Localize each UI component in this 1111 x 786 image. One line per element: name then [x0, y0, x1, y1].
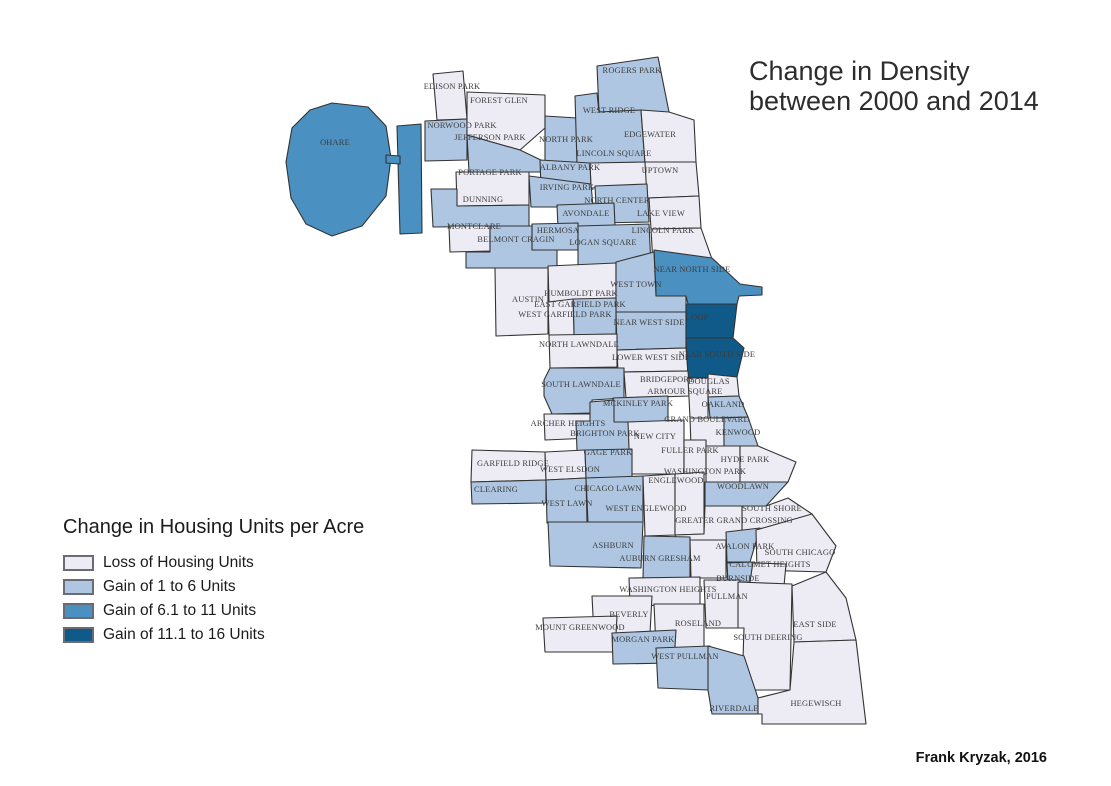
map-area-east-side — [792, 572, 856, 642]
map-label-avondale: AVONDALE — [562, 209, 609, 218]
map-label-gage-park: GAGE PARK — [584, 448, 633, 457]
map-label-calumet-heights: CALUMET HEIGHTS — [729, 560, 810, 569]
map-label-south-chicago: SOUTH CHICAGO — [765, 548, 836, 557]
map-label-south-deering: SOUTH DEERING — [733, 633, 802, 642]
map-area-o-hare-annex — [397, 124, 422, 234]
map-label-chicago-lawn: CHICAGO LAWN — [574, 484, 641, 493]
map-label-garfield-ridge: GARFIELD RIDGE — [477, 459, 549, 468]
map-label-bridgeport: BRIDGEPORT — [640, 375, 694, 384]
map-label-o-hare: OHARE — [320, 138, 350, 147]
legend-swatch-gain-11-16 — [63, 627, 94, 643]
map-label-west-town: WEST TOWN — [610, 280, 661, 289]
map-label-west-garfield-park: WEST GARFIELD PARK — [518, 310, 611, 319]
map-area-edison-park — [433, 71, 467, 120]
map-label-burnside: BURNSIDE — [716, 574, 759, 583]
map-label-rogers-park: ROGERS PARK — [603, 66, 662, 75]
page-title-line1: Change in Density — [749, 56, 1109, 86]
map-label-clearing: CLEARING — [474, 485, 518, 494]
map-label-oakland: OAKLAND — [702, 400, 745, 409]
map-label-fuller-park: FULLER PARK — [661, 446, 719, 455]
map-label-irving-park: IRVING PARK — [540, 183, 595, 192]
map-label-ashburn: ASHBURN — [592, 541, 633, 550]
legend-item-gain-1-6: Gain of 1 to 6 Units — [63, 578, 423, 596]
map-label-uptown: UPTOWN — [642, 166, 679, 175]
map-label-woodlawn: WOODLAWN — [717, 482, 769, 491]
map-label-hermosa: HERMOSA — [537, 226, 579, 235]
map-label-belmont-cragin: BELMONT CRAGIN — [477, 235, 554, 244]
map-label-beverly: BEVERLY — [609, 610, 648, 619]
map-label-north-lawndale: NORTH LAWNDALE — [539, 340, 619, 349]
map-label-new-city: NEW CITY — [634, 432, 676, 441]
chicago-map: OHAREEDISON PARKNORWOOD PARKFOREST GLENN… — [0, 0, 1111, 786]
map-label-lincoln-square: LINCOLN SQUARE — [576, 149, 651, 158]
map-label-east-side: EAST SIDE — [793, 620, 836, 629]
map-label-humboldt-park: HUMBOLDT PARK — [544, 289, 618, 298]
map-label-hegewisch: HEGEWISCH — [790, 699, 841, 708]
map-label-west-elsdon: WEST ELSDON — [540, 465, 600, 474]
map-label-greater-grand-crossing: GREATER GRAND CROSSING — [675, 516, 792, 525]
map-label-west-englewood: WEST ENGLEWOOD — [605, 504, 686, 513]
map-label-washington-heights: WASHINGTON HEIGHTS — [619, 585, 716, 594]
legend-title: Change in Housing Units per Acre — [63, 516, 423, 539]
map-label-lincoln-park: LINCOLN PARK — [632, 226, 695, 235]
map-label-grand-boulevard: GRAND BOULEVARD — [664, 415, 749, 424]
legend-label: Gain of 6.1 to 11 Units — [103, 602, 256, 620]
legend-label: Gain of 1 to 6 Units — [103, 578, 236, 596]
map-label-logan-square: LOGAN SQUARE — [569, 238, 636, 247]
map-label-portage-park: PORTAGE PARK — [458, 168, 522, 177]
map-label-west-lawn: WEST LAWN — [542, 499, 593, 508]
map-label-washington-park: WASHINGTON PARK — [664, 467, 746, 476]
map-label-west-pullman: WEST PULLMAN — [651, 652, 719, 661]
page-title-line2: between 2000 and 2014 — [749, 86, 1109, 116]
page-title: Change in Density between 2000 and 2014 — [749, 56, 1109, 116]
map-label-south-lawndale: SOUTH LAWNDALE — [541, 380, 621, 389]
map-label-douglas: DOUGLAS — [688, 377, 730, 386]
map-label-edgewater: EDGEWATER — [624, 130, 676, 139]
map-label-north-center: NORTH CENTER — [584, 196, 650, 205]
legend-swatch-loss — [63, 555, 94, 571]
map-label-jefferson-park: JEFFERSON PARK — [454, 133, 526, 142]
legend-item-loss: Loss of Housing Units — [63, 554, 423, 572]
map-label-lake-view: LAKE VIEW — [637, 209, 685, 218]
legend-item-gain-11-16: Gain of 11.1 to 16 Units — [63, 626, 423, 644]
map-label-albany-park: ALBANY PARK — [540, 163, 600, 172]
map-label-norwood-park: NORWOOD PARK — [427, 121, 496, 130]
attribution: Frank Kryzak, 2016 — [916, 750, 1047, 766]
map-label-armour-square: ARMOUR SQUARE — [648, 387, 723, 396]
map-area-o-hare-bridge — [386, 155, 400, 164]
map-label-englewood: ENGLEWOOD — [648, 476, 703, 485]
map-label-west-ridge: WEST RIDGE — [583, 106, 635, 115]
legend-label: Loss of Housing Units — [103, 554, 254, 572]
map-label-east-garfield-park: EAST GARFIELD PARK — [534, 300, 626, 309]
legend: Change in Housing Units per Acre Loss of… — [63, 516, 423, 650]
map-label-near-south-side: NEAR SOUTH SIDE — [679, 350, 756, 359]
map-label-south-shore: SOUTH SHORE — [742, 504, 802, 513]
map-label-archer-heights: ARCHER HEIGHTS — [531, 419, 606, 428]
map-label-loop: LOOP — [686, 313, 709, 322]
map-label-montclare: MONTCLARE — [447, 222, 501, 231]
map-label-near-west-side: NEAR WEST SIDE — [614, 318, 685, 327]
map-label-near-north-side: NEAR NORTH SIDE — [654, 265, 731, 274]
map-label-auburn-gresham: AUBURN GRESHAM — [619, 554, 701, 563]
legend-item-gain-6-11: Gain of 6.1 to 11 Units — [63, 602, 423, 620]
map-label-north-park: NORTH PARK — [539, 135, 593, 144]
map-label-roseland: ROSELAND — [675, 619, 721, 628]
map-label-riverdale: RIVERDALE — [709, 704, 758, 713]
map-label-pullman: PULLMAN — [706, 592, 748, 601]
legend-swatch-gain-6-11 — [63, 603, 94, 619]
legend-swatch-gain-1-6 — [63, 579, 94, 595]
map-label-hyde-park: HYDE PARK — [721, 455, 770, 464]
legend-label: Gain of 11.1 to 16 Units — [103, 626, 265, 644]
map-label-mckinley-park: MCKINLEY PARK — [603, 399, 673, 408]
map-label-morgan-park: MORGAN PARK — [611, 635, 674, 644]
map-label-forest-glen: FOREST GLEN — [470, 96, 528, 105]
map-area-o-hare — [286, 103, 391, 236]
map-label-dunning: DUNNING — [463, 195, 503, 204]
map-label-brighton-park: BRIGHTON PARK — [570, 429, 639, 438]
map-label-edison-park: EDISON PARK — [424, 82, 481, 91]
map-label-kenwood: KENWOOD — [716, 428, 761, 437]
map-area-hyde-park — [740, 446, 796, 482]
map-label-mount-greenwood: MOUNT GREENWOOD — [535, 623, 625, 632]
map-area-mount-greenwood — [543, 616, 617, 652]
